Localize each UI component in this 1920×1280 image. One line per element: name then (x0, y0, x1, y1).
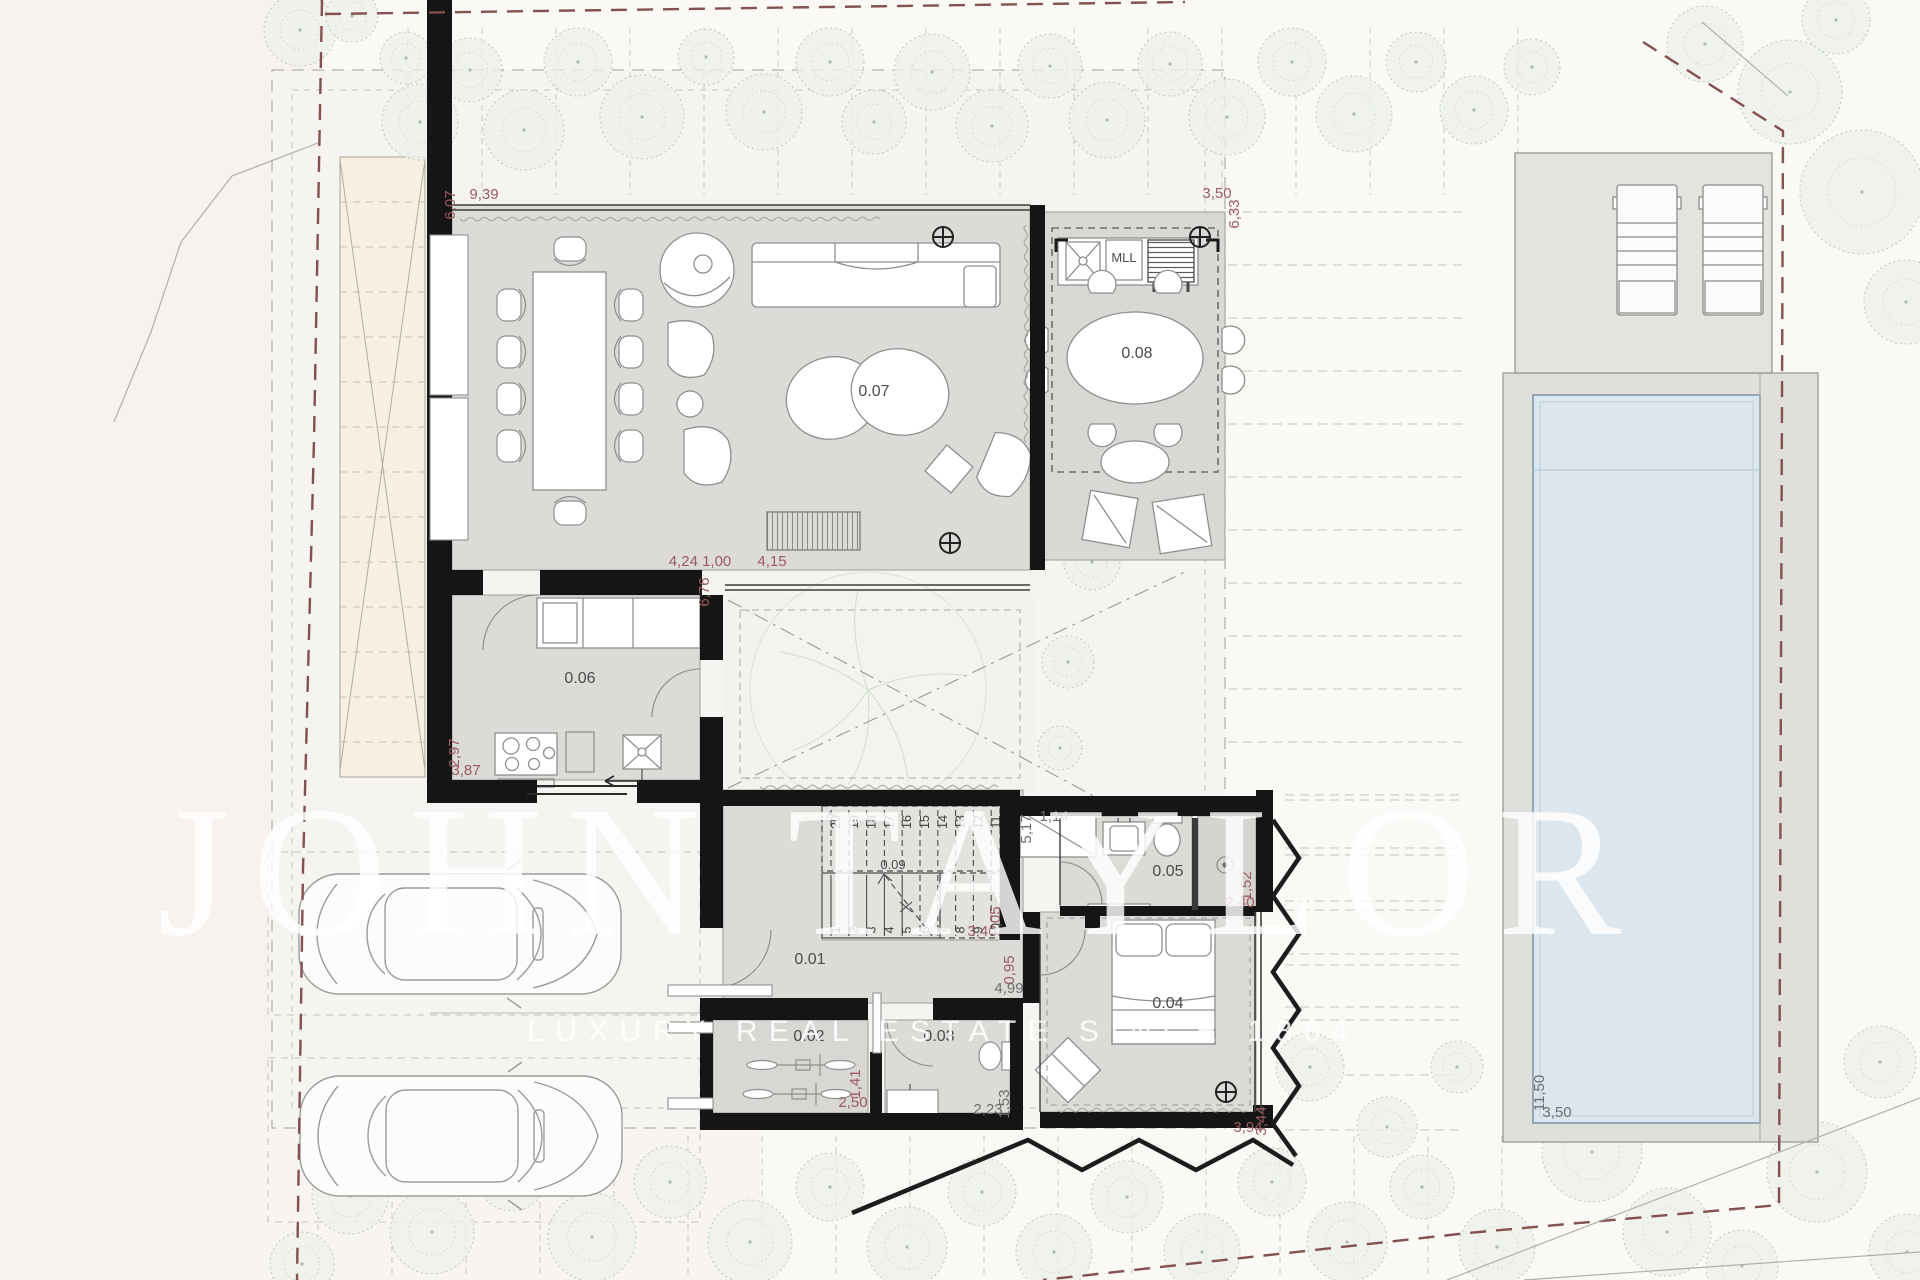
stair-number: 16 (900, 815, 914, 829)
stair-number: 14 (936, 815, 950, 829)
room-label: 0.03 (923, 1028, 954, 1045)
room-label: 0.04 (1152, 995, 1183, 1012)
oval-pouf (1101, 441, 1169, 483)
tree-icon (842, 90, 906, 154)
tree-icon (1316, 76, 1392, 152)
tree-icon (894, 34, 970, 110)
dimension-label: 6,76 (696, 577, 713, 606)
radiator (767, 512, 860, 550)
tree-icon (600, 75, 684, 159)
floor-plan-drawing: 0.070.080.060.090.010.020.030.050.04MLL6… (0, 0, 1920, 1280)
tree-icon (548, 1193, 636, 1280)
tree-icon (708, 1200, 792, 1280)
vanity (1103, 822, 1145, 855)
driveway (340, 157, 425, 777)
tree-icon (1042, 636, 1094, 688)
tree-icon (544, 28, 612, 96)
stair-number: 18 (865, 815, 879, 829)
stair-number: 4 (882, 926, 896, 933)
tree-icon (1357, 1097, 1417, 1157)
cooktop (495, 733, 557, 775)
dimension-label: 3,50 (1542, 1104, 1571, 1121)
tree-icon (1390, 1155, 1454, 1219)
dimension-label: 6,33 (1226, 199, 1243, 228)
tree-icon (1069, 82, 1145, 158)
armchair (684, 427, 731, 485)
toilet (979, 1042, 1001, 1070)
tree-icon (956, 90, 1028, 162)
room-label: 0.02 (793, 1028, 824, 1045)
sofa (752, 243, 1000, 307)
stair-number: 11 (989, 815, 1003, 828)
dimension-label: 1,52 (1238, 871, 1255, 900)
dimension-label: 5,17 (1018, 814, 1035, 843)
tree-icon (726, 74, 802, 150)
dining-table (533, 272, 606, 490)
stair-number: 1 (829, 926, 843, 933)
stair-number: 20 (829, 815, 843, 829)
tree-icon (390, 1190, 474, 1274)
side-table (677, 391, 703, 417)
stair-number: 2 (847, 926, 861, 933)
stair-number: 10 (989, 923, 1003, 937)
room-label: MLL (1111, 250, 1136, 265)
stair-number: 17 (882, 815, 896, 829)
dimension-label: 4,15 (757, 553, 786, 570)
dimension-label: 9,39 (469, 186, 498, 203)
tree-icon (1258, 28, 1326, 96)
toilet (1154, 824, 1180, 856)
wc-sink (887, 1090, 938, 1116)
stair-number: 19 (847, 815, 861, 829)
tree-icon (1623, 1188, 1711, 1276)
tree-icon (1018, 34, 1082, 98)
armchair (668, 321, 714, 378)
room-label: 0.05 (1152, 863, 1183, 880)
tree-icon (1440, 76, 1508, 144)
tree-icon (1667, 6, 1743, 82)
tree-icon (678, 29, 734, 85)
room-label: 0.01 (794, 951, 825, 968)
tree-icon (1386, 32, 1446, 92)
tree-icon (1189, 79, 1265, 155)
tree-icon (380, 32, 432, 84)
tree-icon (1431, 1041, 1483, 1093)
dimension-label: 1,53 (996, 1089, 1013, 1118)
survey-marker-icon (1216, 1082, 1236, 1102)
survey-marker-icon (1190, 227, 1210, 247)
stair-number: 15 (918, 815, 932, 829)
stair-number: 7 (936, 926, 950, 933)
pool-area (1503, 153, 1818, 1142)
room-label: 0.08 (1121, 345, 1152, 362)
stair-number: 5 (900, 926, 914, 933)
tree-icon (1238, 1148, 1306, 1216)
stair-number: 13 (954, 815, 968, 829)
tree-icon (1091, 1161, 1163, 1233)
tree-icon (1138, 32, 1202, 96)
stair-number: 6 (918, 926, 932, 933)
tree-icon (1800, 130, 1920, 254)
tree-icon (796, 28, 864, 96)
dimension-label: 2,50 (838, 1094, 867, 1111)
room-label: 0.06 (564, 670, 595, 687)
pool-water (1533, 395, 1760, 1123)
tree-icon (1504, 39, 1560, 95)
dimension-label: 1,14 (1039, 808, 1068, 825)
dimension-label: 3,44 (1253, 1106, 1270, 1135)
tree-icon (484, 90, 564, 170)
tree-icon (1738, 40, 1842, 144)
tree-icon (634, 1146, 706, 1218)
stair-number: 8 (954, 926, 968, 933)
stair-number: 12 (971, 815, 985, 829)
stair-number: 3 (865, 926, 879, 933)
room-label: 0.09 (880, 857, 905, 872)
dimension-label: 4,24 1,00 (669, 553, 732, 570)
tree-icon (1038, 726, 1082, 770)
dimension-label: 4,99 (994, 980, 1023, 997)
dimension-label: 3,87 (451, 762, 480, 779)
tree-icon (1844, 1026, 1916, 1098)
dimension-label: 6,07 (442, 190, 459, 219)
survey-marker-icon (933, 227, 953, 247)
room-label: 0.07 (858, 383, 889, 400)
survey-marker-icon (940, 533, 960, 553)
floor-plan-page: 0.070.080.060.090.010.020.030.050.04MLL6… (0, 0, 1920, 1280)
stair-number: 9 (971, 926, 985, 933)
tree-icon (1307, 1202, 1387, 1280)
